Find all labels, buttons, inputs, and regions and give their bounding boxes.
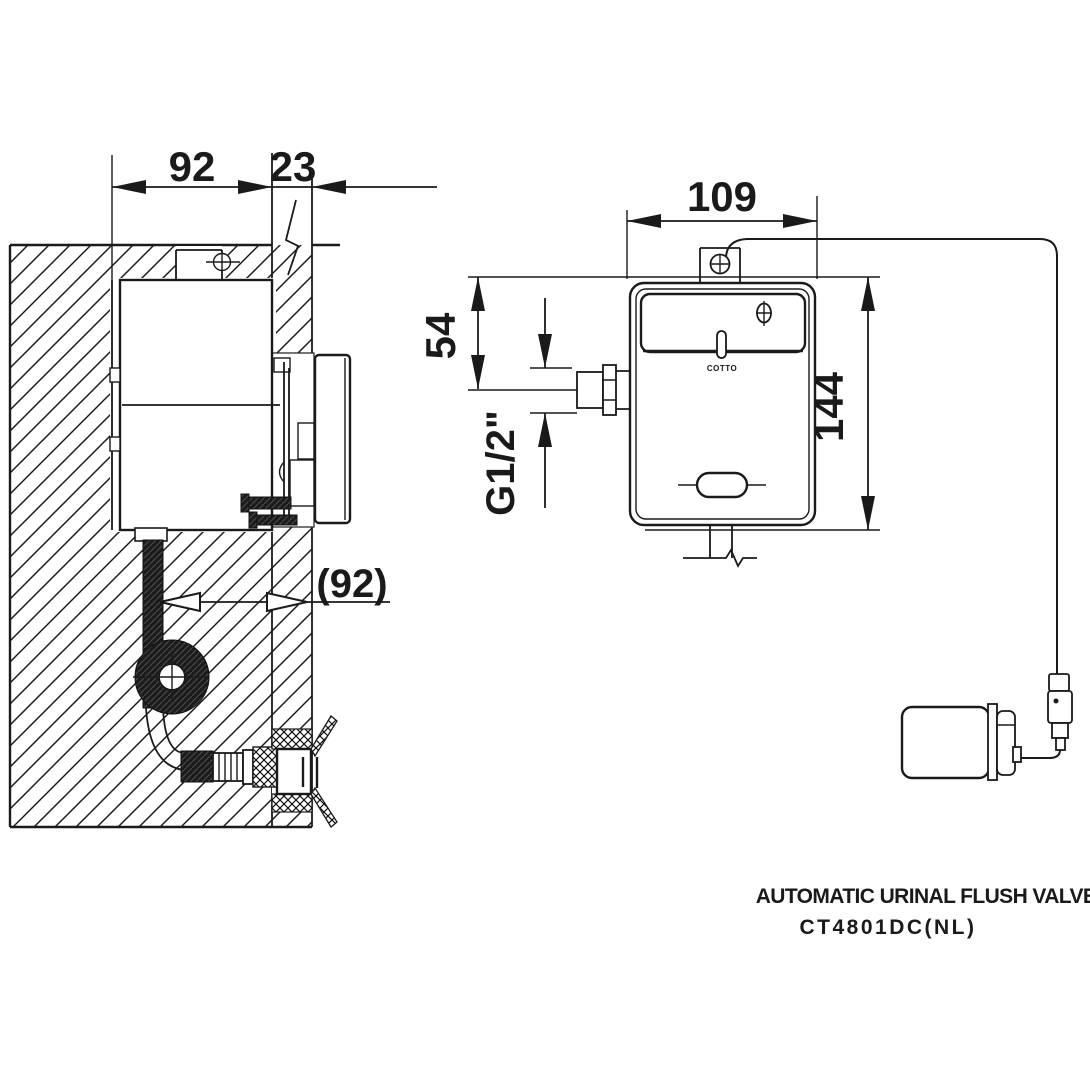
dim144-arrow-top: [861, 277, 875, 311]
fixing-bolt-lower: [255, 515, 297, 525]
product-name-text: AUTOMATIC URINAL FLUSH VALVE: [756, 885, 1090, 908]
caption: AUTOMATIC URINAL FLUSH VALVE CT4801DC(NL…: [756, 885, 1090, 939]
pipe-break-symbol: [683, 550, 757, 566]
dimG12-arrow-top: [538, 334, 552, 368]
dim-recess-ref-label: (92): [316, 562, 387, 606]
plug-lower-section: [1052, 723, 1068, 738]
dim-wall-thickness-label: 23: [270, 143, 317, 190]
battery-terminal-nub: [1013, 747, 1021, 762]
mounting-tab-upper: [110, 368, 120, 382]
dim54-arrow-top: [471, 277, 485, 311]
spout-collar: [243, 750, 253, 784]
inlet-connect-lines: [616, 371, 630, 409]
battery-box: [902, 707, 989, 778]
spout-thread-bottom: [272, 794, 312, 812]
spout-flange-upper: [311, 716, 337, 756]
dim144-arrow-bottom: [861, 496, 875, 530]
sensor-window: [697, 473, 747, 497]
dim-inlet-offset-label: 54: [417, 312, 464, 359]
battery-cap-band: [988, 704, 997, 780]
dim-body-width-label: 109: [687, 173, 757, 220]
dim109-arrow-right: [783, 214, 817, 228]
plug-top-section: [1049, 674, 1069, 691]
brand-logo: COTTO: [707, 364, 737, 373]
battery-cap: [997, 711, 1015, 775]
module-inner-block: [298, 423, 314, 459]
plug-indicator-dot: [1054, 699, 1059, 704]
panel-keyhole-slot: [717, 331, 726, 358]
technical-drawing-canvas: 92 23: [0, 0, 1090, 1090]
plug-body: [1048, 691, 1072, 723]
model-number-text: CT4801DC(NL): [799, 916, 976, 939]
dim-body-height-label: 144: [805, 371, 852, 442]
dim54-arrow-bottom: [471, 355, 485, 389]
spout-ribbed-fitting: [213, 753, 243, 781]
drawing-svg: 92 23: [0, 0, 1090, 1090]
battery-lead-wire: [1020, 750, 1060, 758]
spout-flange-lower: [311, 788, 337, 827]
pipe-top-fitting: [135, 528, 167, 541]
plug-tip: [1056, 738, 1065, 750]
spout-thread-top: [272, 729, 312, 749]
dimG12-arrow-bottom: [538, 413, 552, 447]
module-lower-block: [290, 460, 314, 506]
front-view: COTTO 109 54 G1/2": [417, 173, 880, 566]
dim92-arrow-right: [238, 180, 272, 194]
spout-chamber: [277, 749, 311, 794]
inlet-stub: [577, 372, 603, 408]
fixing-bolt-upper: [247, 497, 291, 509]
spout-threaded-body: [253, 747, 277, 787]
dim92-arrow-left: [112, 180, 146, 194]
module-top-hook: [274, 358, 290, 372]
fixing-bolt-lower-head: [249, 512, 257, 528]
inlet-nut: [603, 365, 616, 415]
dim-inlet-thread-label: G1/2": [479, 410, 523, 516]
dim-recess-width-label: 92: [169, 143, 216, 190]
dim109-arrow-left: [627, 214, 661, 228]
spout-hose: [181, 751, 213, 782]
fixing-bolt-upper-head: [241, 494, 249, 512]
side-section-view: 92 23: [10, 143, 437, 827]
mounting-tab-lower: [110, 437, 120, 451]
dim23-arrow: [312, 180, 346, 194]
